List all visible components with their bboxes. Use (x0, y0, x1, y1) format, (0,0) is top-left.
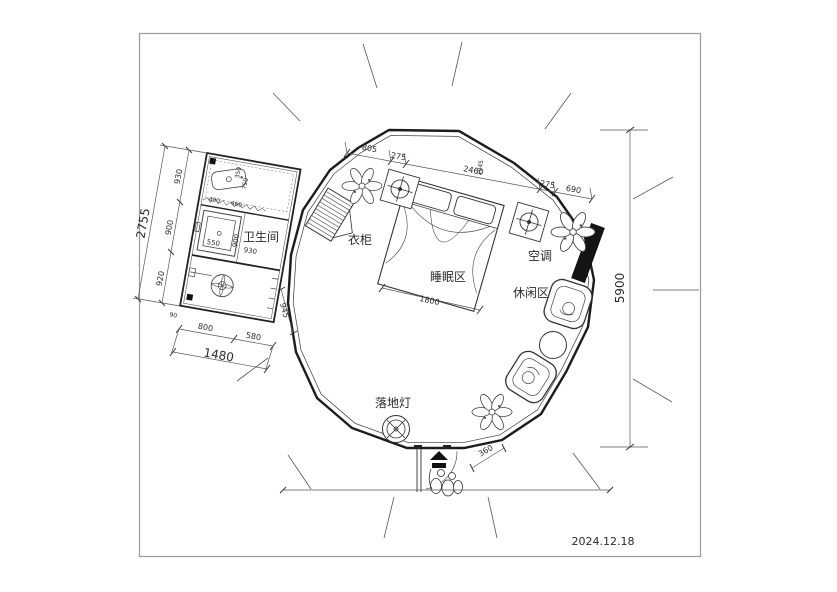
ac-label: 空调 (528, 249, 552, 263)
dim-right-5900: 5900 (613, 273, 627, 304)
entrance-arrow-icon (430, 451, 448, 468)
dim-bath-930a: 930 (173, 168, 185, 185)
floor-lamp-label: 落地灯 (375, 396, 411, 410)
chair-top (541, 277, 595, 332)
floor-lamp-icon (383, 416, 410, 443)
bathroom-label: 卫生间 (243, 230, 279, 244)
wardrobe-label: 衣柜 (348, 232, 372, 247)
dim-bath-90: 90 (169, 311, 178, 319)
dim-top-275a: 275 (390, 151, 407, 163)
sleeping-area-label: 睡眠区 (430, 270, 466, 284)
nightstand-right (509, 202, 549, 242)
dim-top-690: 690 (565, 184, 582, 196)
dim-bath-580: 580 (245, 331, 262, 343)
hinge-mark (186, 294, 193, 301)
dim-top-805: 805 (361, 143, 378, 155)
round-table (540, 332, 567, 359)
dim-bath-900: 900 (164, 219, 176, 236)
floor-plan-page: 卫生间 衣柜 睡眠区 休闲区 空调 落地灯 805 275 2460 1045 … (0, 0, 837, 592)
dim-top-275b: 275 (539, 179, 556, 191)
dim-bath-2755: 2755 (134, 207, 153, 240)
dim-bath-1480: 1480 (202, 346, 235, 365)
date-label: 2024.12.18 (572, 535, 635, 548)
floor-plan-canvas: 卫生间 衣柜 睡眠区 休闲区 空调 落地灯 805 275 2460 1045 … (0, 0, 837, 592)
entrance (414, 445, 463, 496)
dim-bath-800: 800 (197, 322, 214, 334)
hinge-mark (209, 158, 216, 165)
person-figure (429, 469, 462, 496)
dim-bath-920: 920 (155, 270, 167, 287)
dim-top-1045: 1045 (476, 159, 486, 175)
leisure-area-label: 休闲区 (513, 286, 549, 300)
plant-icon (472, 392, 512, 431)
